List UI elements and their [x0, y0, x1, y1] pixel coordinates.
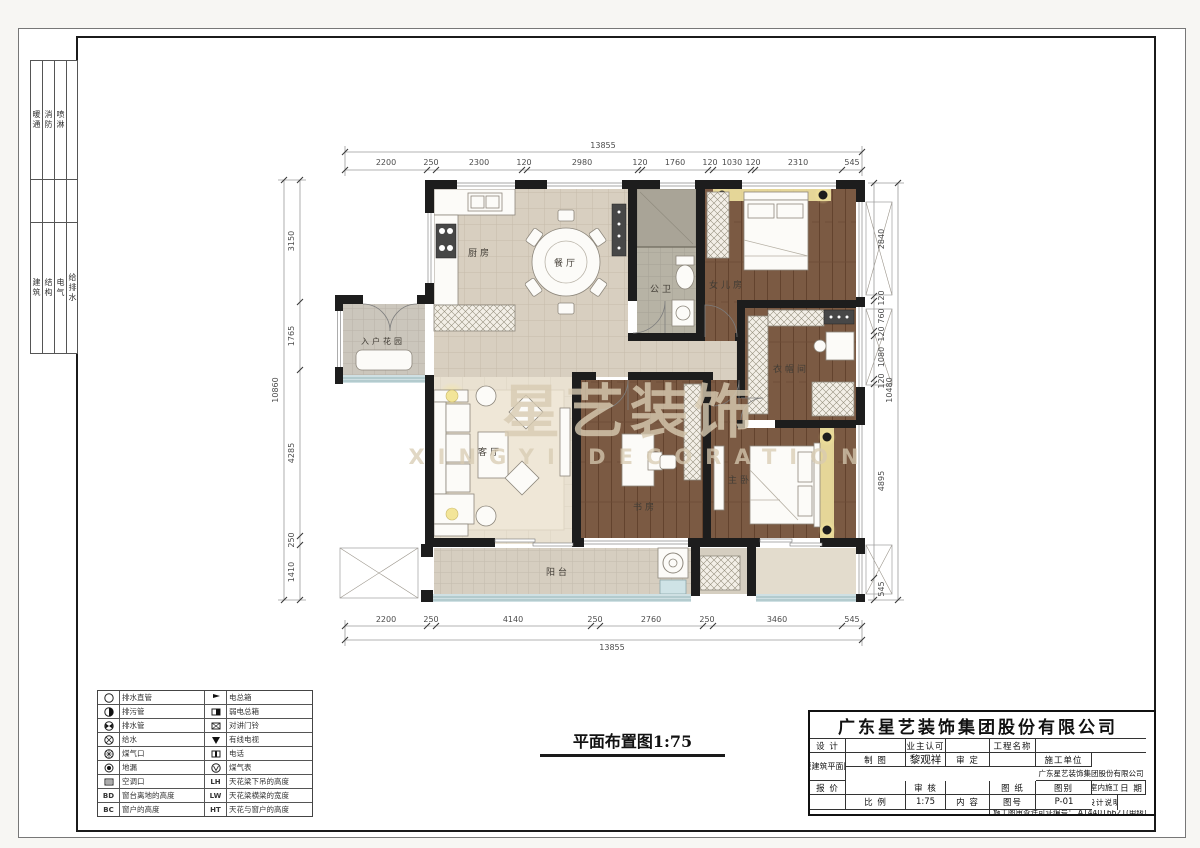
field-project-value: [1036, 739, 1146, 753]
dim: 545: [844, 615, 859, 624]
field-owner-value: [946, 739, 990, 753]
field-no-value: P-01: [1036, 795, 1092, 810]
watermark-en: XINGYI DECORATION: [408, 445, 871, 469]
label-bath: 公卫: [650, 284, 674, 295]
dim: 4895: [877, 471, 886, 491]
field-review-value: [946, 781, 990, 795]
dim-total-top: 13855: [590, 141, 615, 150]
legend-label: 天花梁横梁的宽度: [227, 789, 312, 802]
cable-tv-icon: [205, 733, 227, 746]
dim: 2200: [376, 158, 396, 167]
dim: 2980: [572, 158, 592, 167]
dim: 2840: [877, 229, 886, 249]
legend-label: 电总箱: [227, 691, 312, 704]
water-pipe-icon: [98, 719, 120, 732]
field-project-label: 工程名称: [990, 739, 1036, 753]
legend-label: 地漏: [120, 761, 205, 774]
dim: 120: [877, 290, 886, 305]
legend-label: 空调口: [120, 775, 205, 788]
legend-label: 排水直管: [120, 691, 205, 704]
dim-total-left: 10860: [271, 377, 280, 402]
lv-box-icon: [205, 705, 227, 718]
legend-label: 排水管: [120, 719, 205, 732]
company-name: 广东星艺装饰集团股份有限公司: [810, 712, 1146, 739]
field-design-label: 设 计: [810, 739, 846, 753]
legend-row: 空调口 LH 天花梁下吊的高度: [98, 775, 312, 789]
legend-label: 弱电总箱: [227, 705, 312, 718]
dim: 1410: [287, 562, 296, 582]
legend-code: LW: [205, 789, 227, 802]
plan-caption: 平面布置图1:75: [540, 728, 725, 757]
legend-row: BC 窗户的高度 HT 天花与窗户的高度: [98, 803, 312, 816]
dim: 3150: [287, 231, 296, 251]
dim: 2760: [641, 615, 661, 624]
dim: 1030: [722, 158, 742, 167]
field-date-value: [810, 795, 846, 810]
doorbell-icon: [205, 719, 227, 732]
dim: 250: [287, 532, 296, 547]
dim: 250: [699, 615, 714, 624]
title-block: 广东星艺装饰集团股份有限公司 设 计 业主认可 工程名称 制 图 黎观祥 审 定…: [808, 710, 1156, 816]
power-box-icon: [205, 691, 227, 704]
dim: 760: [877, 308, 886, 323]
field-sheet-content: 原建筑平面图: [810, 753, 846, 781]
dim: 4285: [287, 443, 296, 463]
legend-row: 排污管 弱电总箱: [98, 705, 312, 719]
legend-label: 排污管: [120, 705, 205, 718]
legend-label: 有线电视: [227, 733, 312, 746]
label-daughter: 女儿房: [709, 279, 745, 291]
watermark-cn: 星艺装饰: [502, 378, 758, 446]
field-sheet-label: 图 纸: [990, 781, 1036, 795]
field-cat-label: 图别: [1036, 781, 1092, 795]
legend-label: 天花梁下吊的高度: [227, 775, 312, 788]
field-quote-label: 报 价: [810, 781, 846, 795]
field-content-label: 内 容: [946, 795, 990, 810]
label-dining: 餐厅: [554, 257, 578, 269]
drain-pipe-icon: [98, 691, 120, 704]
dim: 120: [745, 158, 760, 167]
label-balcony: 阳台: [546, 566, 570, 578]
legend-row: 给水 有线电视: [98, 733, 312, 747]
dim-total-right: 10480: [885, 377, 894, 402]
legend-label: 天花与窗户的高度: [227, 803, 312, 816]
field-permit: 施工图审查许可证编号： A144016621(甲级): [990, 810, 1146, 814]
legend-row: 排水管 对讲门铃: [98, 719, 312, 733]
dim: 545: [844, 158, 859, 167]
water-supply-icon: [98, 733, 120, 746]
field-design-value: [846, 739, 906, 753]
dim: 2300: [469, 158, 489, 167]
field-approve-label: 审 定: [946, 753, 990, 767]
legend-row: 煤气口 电话: [98, 747, 312, 761]
field-scale-value: 1:75: [906, 795, 946, 810]
dim: 545: [877, 581, 886, 596]
dim: 250: [587, 615, 602, 624]
label-master: 主卧: [728, 474, 752, 486]
field-date-label: 日 期: [1118, 781, 1146, 795]
legend-label: 给水: [120, 733, 205, 746]
dim: 2200: [376, 615, 396, 624]
legend-code: BD: [98, 789, 120, 802]
legend-label: 窗台离地的高度: [120, 789, 205, 802]
phone-icon: [205, 747, 227, 760]
field-cat-value: 室内施工: [1092, 781, 1118, 795]
legend-code: HT: [205, 803, 227, 816]
dim-total-bottom: 13855: [599, 643, 624, 652]
legend-code: BC: [98, 803, 120, 816]
floor-drain-icon: [98, 761, 120, 774]
field-notes-value: [846, 810, 990, 814]
field-review-label: 审 核: [906, 781, 946, 795]
dim: 120: [516, 158, 531, 167]
field-draft-value: 黎观祥: [906, 753, 946, 767]
dim: 250: [423, 158, 438, 167]
dim: 4140: [503, 615, 523, 624]
legend-row: BD 窗台离地的高度 LW 天花梁横梁的宽度: [98, 789, 312, 803]
label-cloak: 衣帽间: [773, 363, 809, 375]
legend-label: 煤气表: [227, 761, 312, 774]
legend-row: 排水直管 电总箱: [98, 691, 312, 705]
dim: 120: [702, 158, 717, 167]
field-owner-label: 业主认可: [906, 739, 946, 753]
legend-label: 煤气口: [120, 747, 205, 760]
dim: 1765: [287, 326, 296, 346]
dim: 3460: [767, 615, 787, 624]
gas-port-icon: [98, 747, 120, 760]
field-quote-value: [846, 781, 906, 795]
field-scale-label: 比 例: [846, 795, 906, 810]
legend-table: 排水直管 电总箱 排污管 弱电总箱 排水管 对讲门铃 给水 有线电视 煤气口 电…: [97, 690, 313, 817]
sewage-pipe-icon: [98, 705, 120, 718]
dim: 120: [632, 158, 647, 167]
dim: 1760: [665, 158, 685, 167]
dim: 250: [423, 615, 438, 624]
dim: 2310: [788, 158, 808, 167]
field-no-label: 图号: [990, 795, 1036, 810]
legend-label: 对讲门铃: [227, 719, 312, 732]
legend-label: 窗户的高度: [120, 803, 205, 816]
field-draft-label: 制 图: [846, 753, 906, 767]
dim: 1080: [877, 347, 886, 367]
field-builder-value: 广东星艺装饰集团股份有限公司: [1036, 767, 1146, 781]
dim: 120: [877, 326, 886, 341]
legend-row: 地漏 煤气表: [98, 761, 312, 775]
label-kitchen: 厨房: [468, 247, 492, 259]
field-approve-value: [990, 753, 1036, 767]
legend-code: LH: [205, 775, 227, 788]
label-entry: 入户花园: [361, 336, 405, 346]
label-study: 书房: [633, 501, 657, 513]
ac-vent-icon: [98, 775, 120, 788]
field-builder-label: 施工单位: [1036, 753, 1092, 767]
legend-label: 电话: [227, 747, 312, 760]
gas-meter-icon: [205, 761, 227, 774]
field-notes-label: 设计说明: [1092, 795, 1118, 810]
